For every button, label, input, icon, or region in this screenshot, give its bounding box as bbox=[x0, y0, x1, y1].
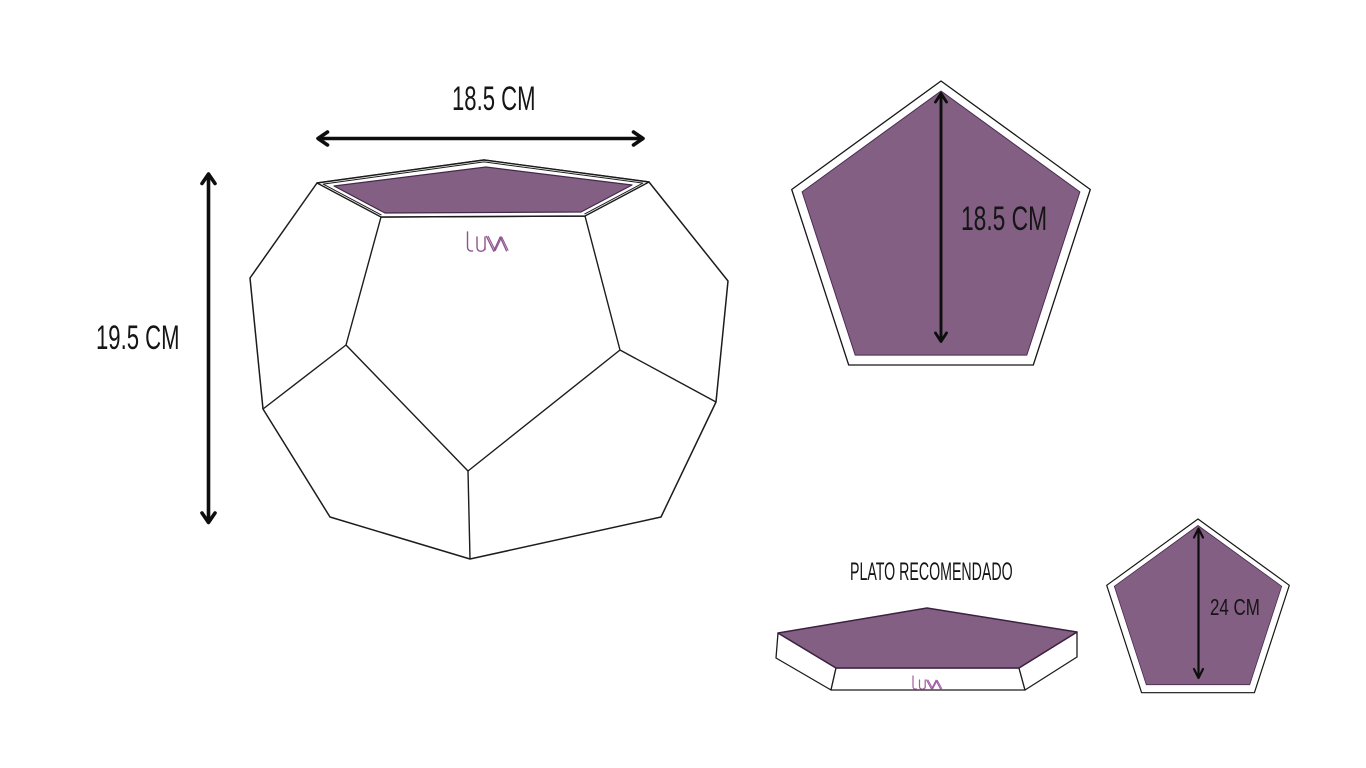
svg-text:18.5 CM: 18.5 CM bbox=[961, 201, 1047, 239]
svg-text:PLATO RECOMENDADO: PLATO RECOMENDADO bbox=[850, 559, 1013, 586]
svg-text:19.5 CM: 19.5 CM bbox=[96, 319, 179, 357]
svg-text:24 CM: 24 CM bbox=[1210, 596, 1260, 621]
svg-text:18.5 CM: 18.5 CM bbox=[452, 80, 535, 118]
